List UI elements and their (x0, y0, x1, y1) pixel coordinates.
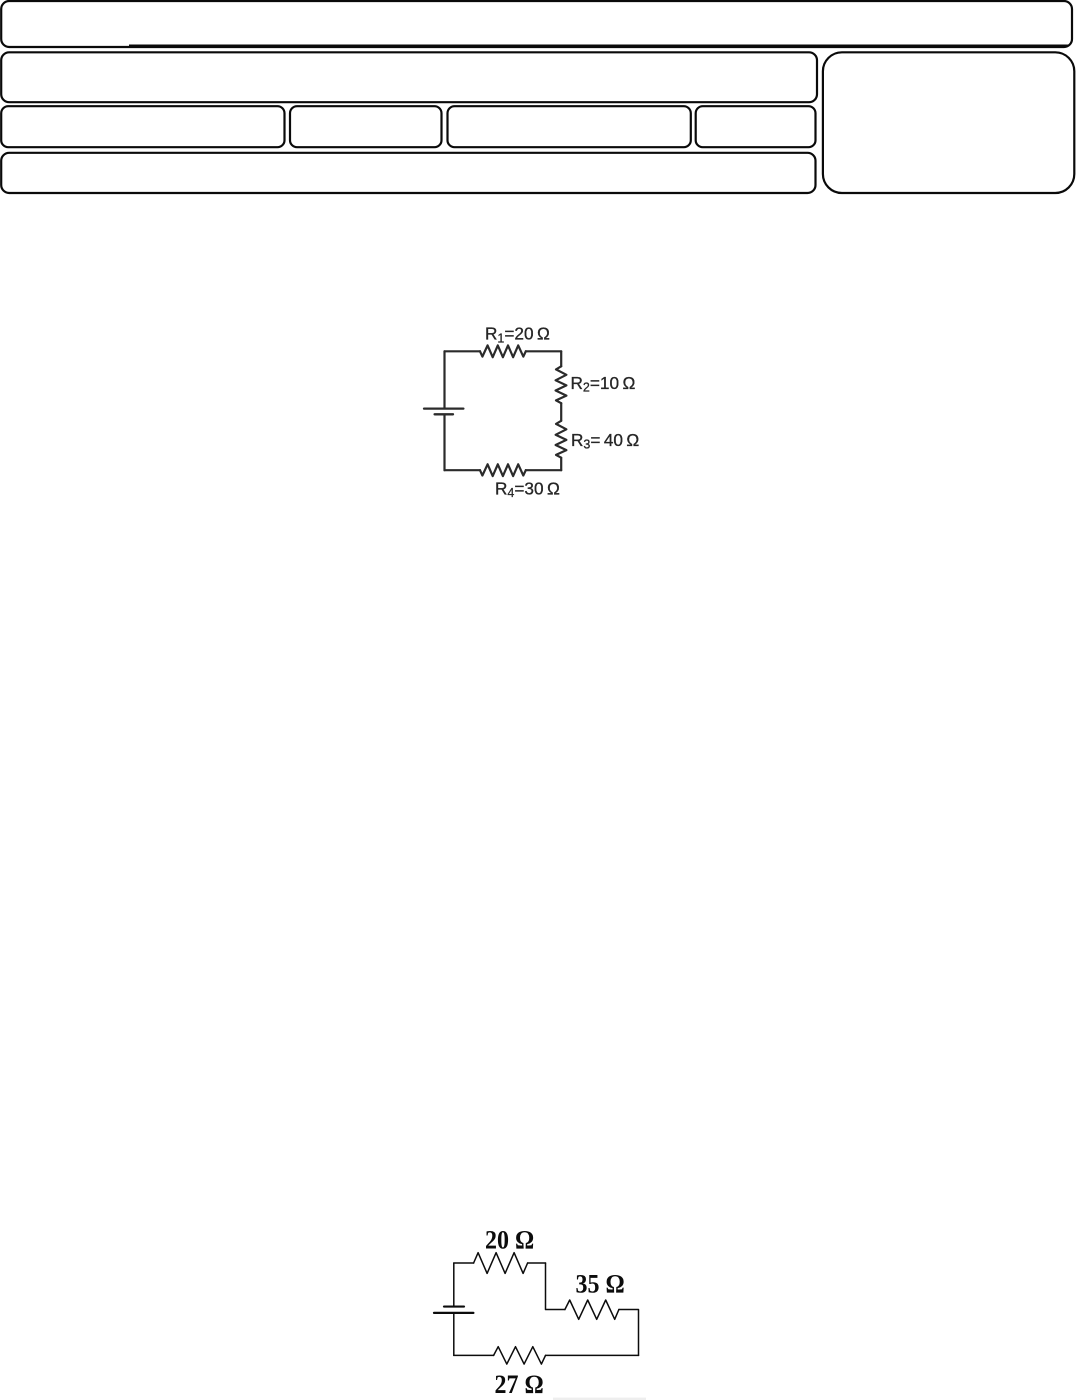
svg-text:R3= 40 Ω: R3= 40 Ω (571, 430, 639, 452)
svg-text:R4=30 Ω: R4=30 Ω (495, 478, 560, 500)
svg-text:R2=10 Ω: R2=10 Ω (571, 373, 636, 395)
svg-text:R1=20 Ω: R1=20 Ω (485, 324, 550, 346)
svg-text:20 Ω: 20 Ω (485, 1226, 534, 1254)
svg-text:35 Ω: 35 Ω (576, 1270, 625, 1298)
svg-text:27 Ω: 27 Ω (495, 1371, 544, 1399)
